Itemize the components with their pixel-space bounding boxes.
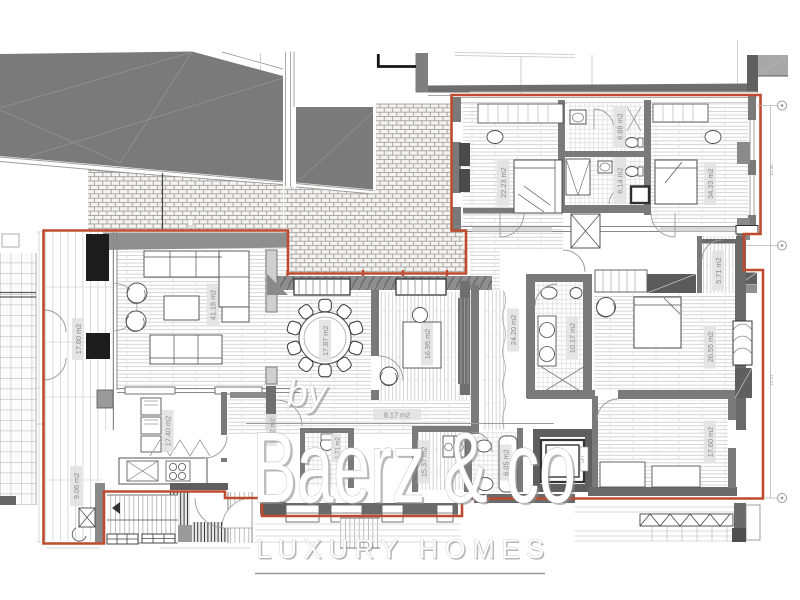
svg-text:6.14 m2: 6.14 m2 (616, 167, 625, 193)
svg-text:17.40 m2: 17.40 m2 (164, 416, 173, 446)
svg-text:6.88 m2: 6.88 m2 (616, 113, 625, 139)
svg-text:9.06 m2: 9.06 m2 (72, 473, 81, 499)
svg-text:17.60 m2: 17.60 m2 (706, 427, 715, 457)
svg-text:24.20 m2: 24.20 m2 (509, 315, 518, 345)
svg-text:by: by (286, 373, 328, 415)
svg-text:LIFT: LIFT (581, 455, 585, 463)
svg-text:31.45: 31.45 (769, 164, 774, 176)
svg-text:17.87 m2: 17.87 m2 (321, 326, 330, 356)
svg-text:26.55 m2: 26.55 m2 (706, 332, 715, 362)
svg-text:Baerz & co: Baerz & co (253, 411, 576, 523)
svg-text:16.95 m2: 16.95 m2 (423, 329, 432, 359)
svg-text:41.18 m2: 41.18 m2 (209, 290, 218, 320)
svg-text:34.33 m2: 34.33 m2 (706, 168, 715, 198)
svg-text:17.80 m2: 17.80 m2 (74, 324, 83, 354)
svg-text:72.27: 72.27 (769, 374, 774, 386)
svg-text:22.23 m2: 22.23 m2 (499, 167, 508, 197)
svg-text:5.71 m2: 5.71 m2 (714, 257, 723, 283)
svg-text:10.17 m2: 10.17 m2 (568, 323, 577, 353)
